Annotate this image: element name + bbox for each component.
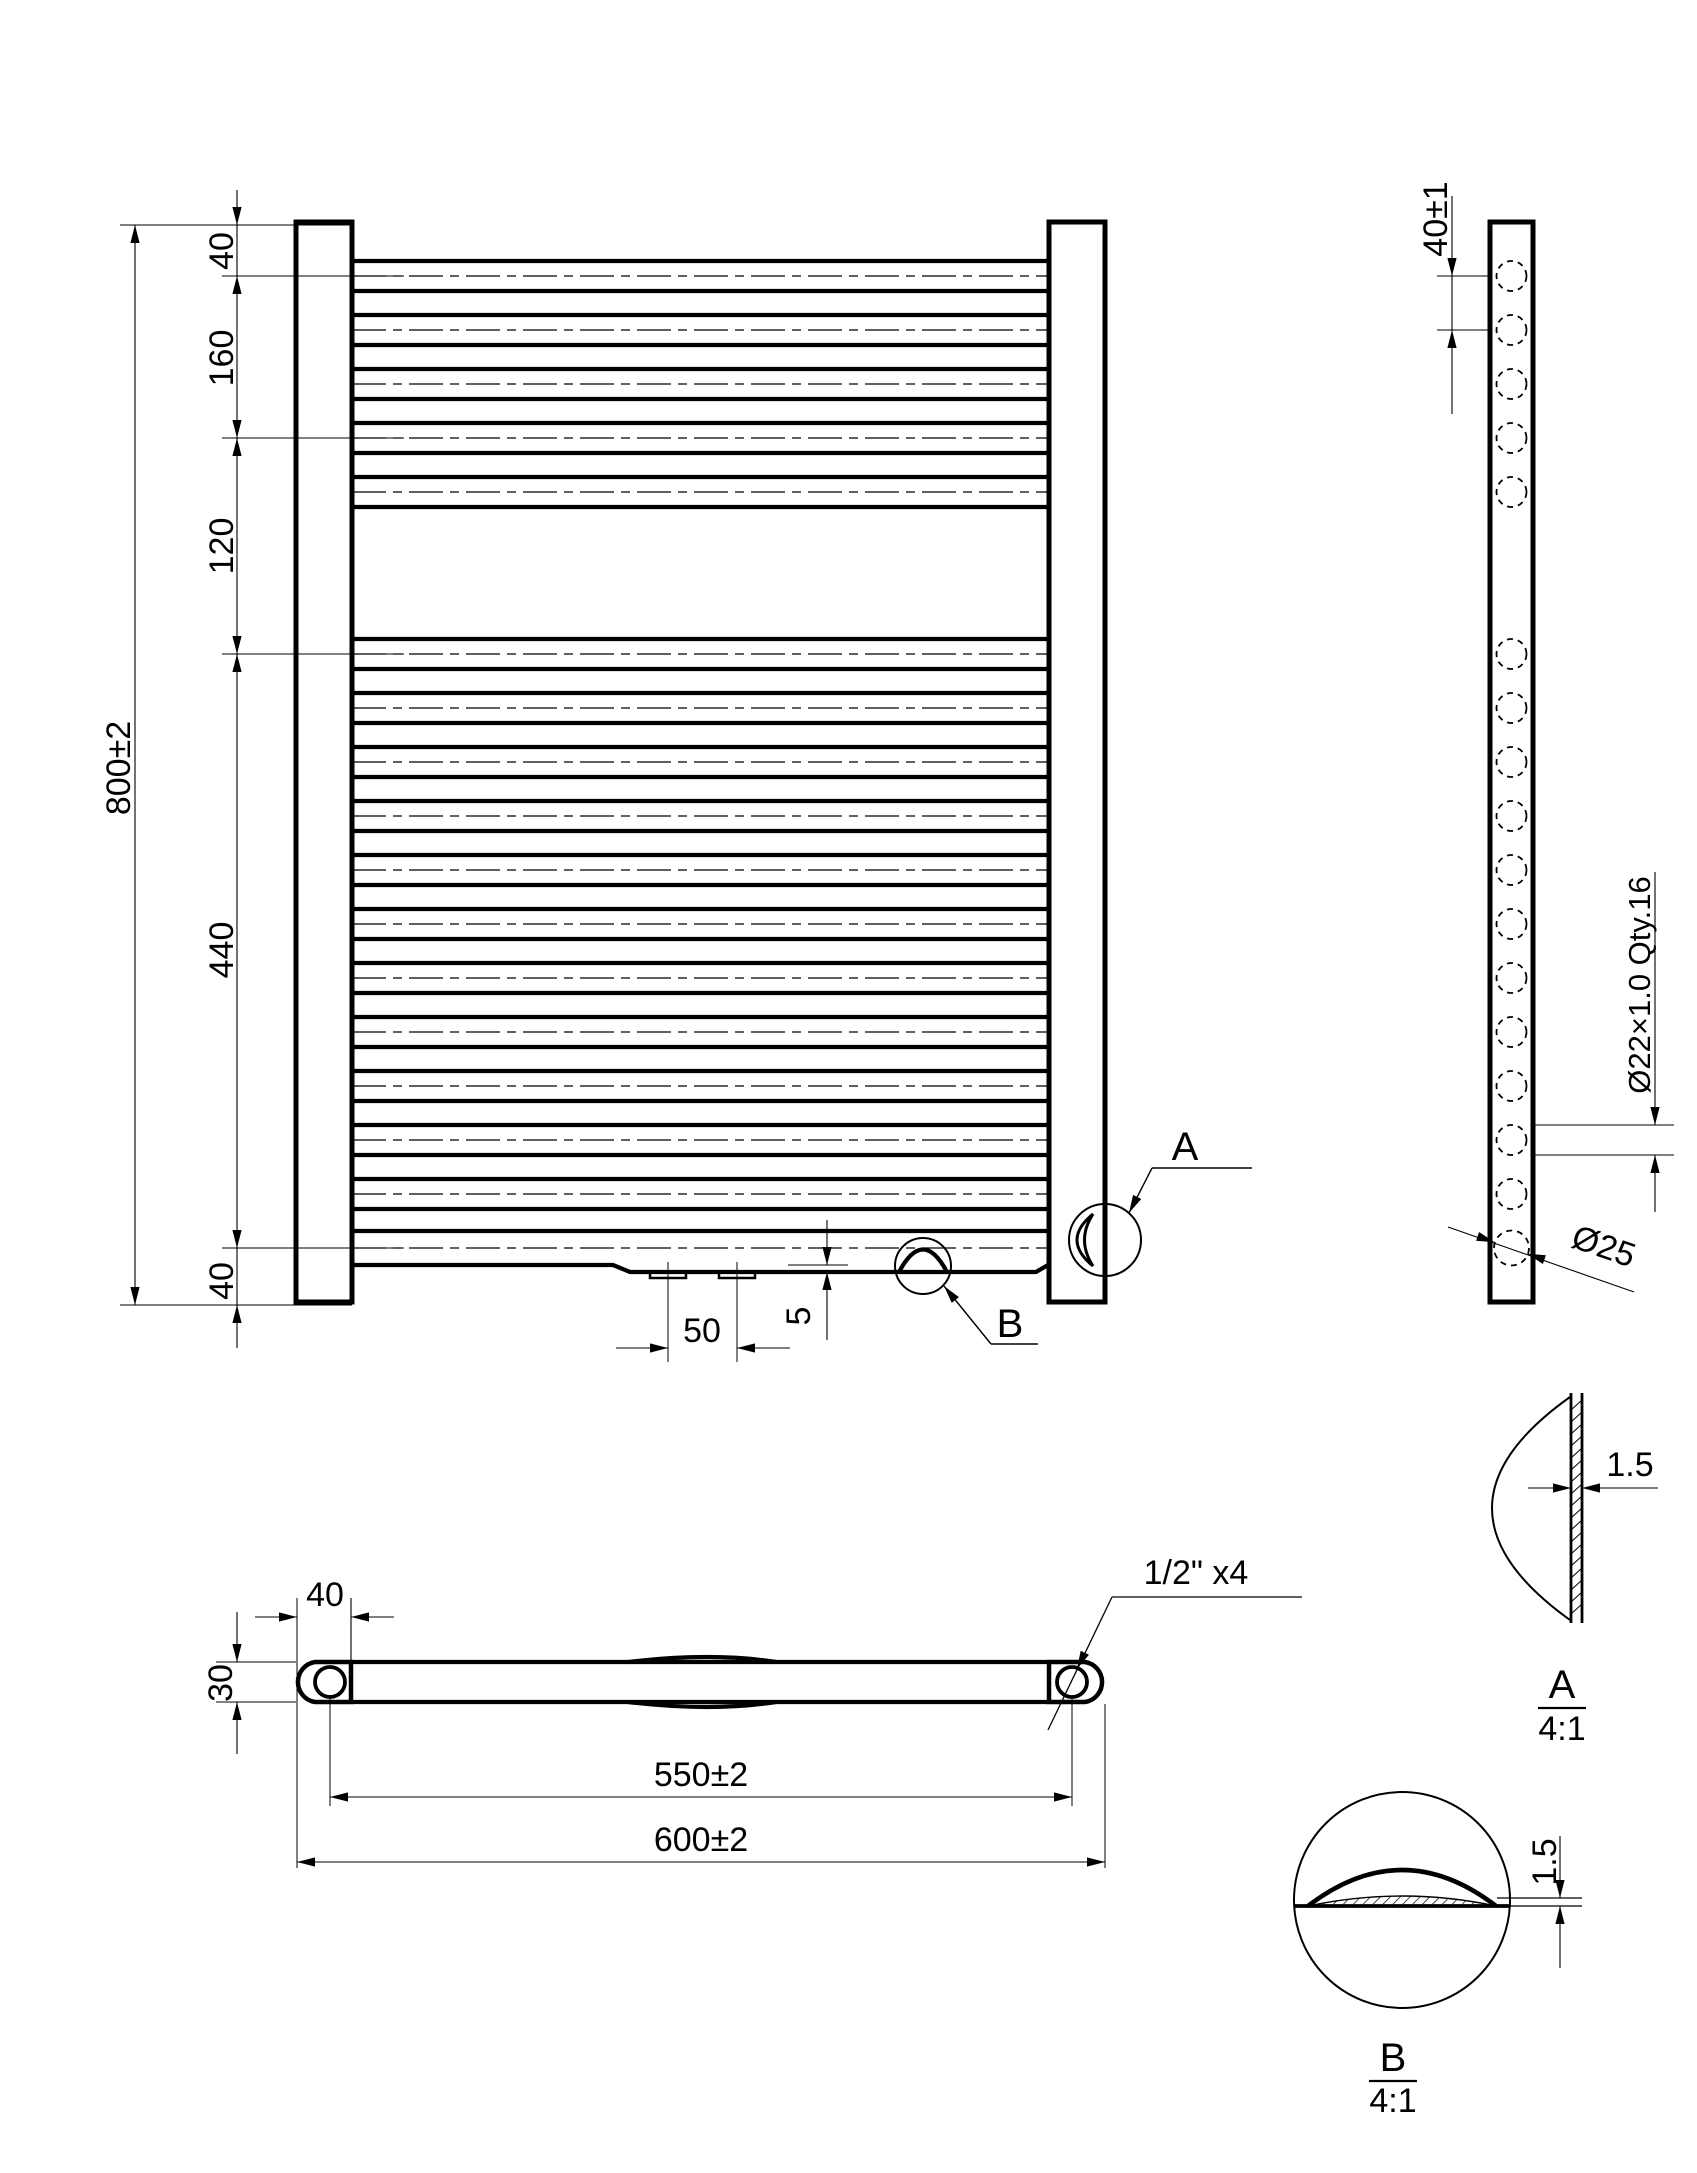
dim-collector-diameter: Ø25 [1567,1218,1640,1275]
dim-tube-pitch: 40±1 [1417,181,1455,256]
detail-a-dim-wall: 1.5 [1606,1446,1653,1484]
drawing-geometry [120,190,1674,2081]
dim-middle-gap: 120 [203,518,241,575]
detail-callout-a: A [1172,1125,1199,1169]
dim-upper-group-span: 160 [203,330,241,387]
dim-top-offset: 40 [203,232,241,270]
dim-end-width: 40 [306,1576,344,1614]
drawing-sheet: 40 160 120 440 40 800±2 50 5 A B 40±1 Ø2… [0,0,1697,2173]
dim-slot-spacing: 50 [683,1312,721,1350]
detail-b-label: B [1380,2036,1407,2080]
dim-lower-group-span: 440 [203,922,241,979]
detail-a-scale: 4:1 [1538,1710,1585,1748]
dim-dome-height: 5 [780,1307,818,1326]
technical-drawing: 40 160 120 440 40 800±2 50 5 A B 40±1 Ø2… [0,0,1697,2173]
dim-overall-width: 600±2 [654,1821,748,1859]
dim-profile-depth: 30 [202,1664,240,1702]
dim-bottom-offset: 40 [203,1262,241,1300]
thread-callout: 1/2" x4 [1144,1554,1249,1592]
dim-tube-spec: Ø22×1.0 Qty.16 [1622,876,1657,1093]
detail-b-scale: 4:1 [1369,2082,1416,2120]
dim-port-centers: 550±2 [654,1756,748,1794]
detail-b-dim-wall: 1.5 [1526,1838,1564,1885]
detail-a-label: A [1549,1663,1576,1707]
dim-overall-height: 800±2 [100,721,138,815]
detail-callout-b: B [997,1302,1024,1346]
